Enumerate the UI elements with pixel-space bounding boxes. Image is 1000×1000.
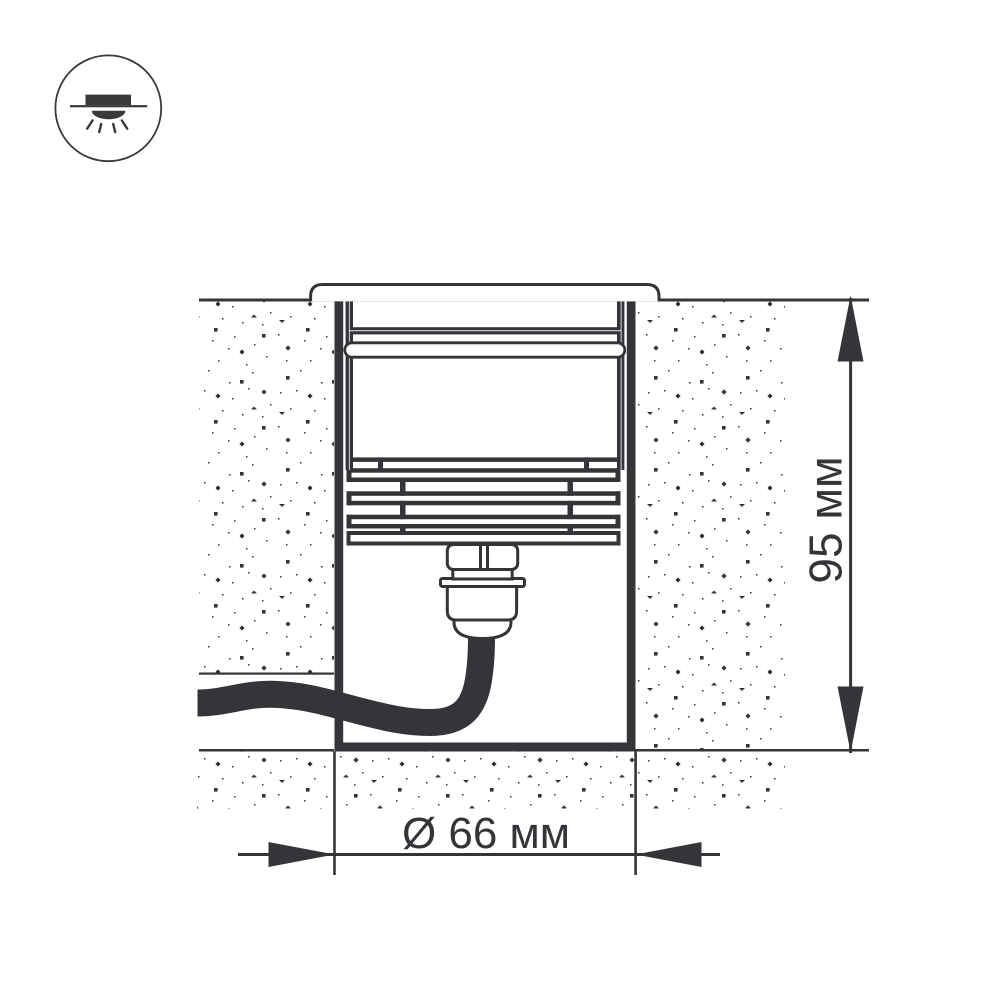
svg-text:Ø 66 мм: Ø 66 мм [402, 809, 570, 858]
svg-text:95 мм: 95 мм [800, 456, 852, 583]
